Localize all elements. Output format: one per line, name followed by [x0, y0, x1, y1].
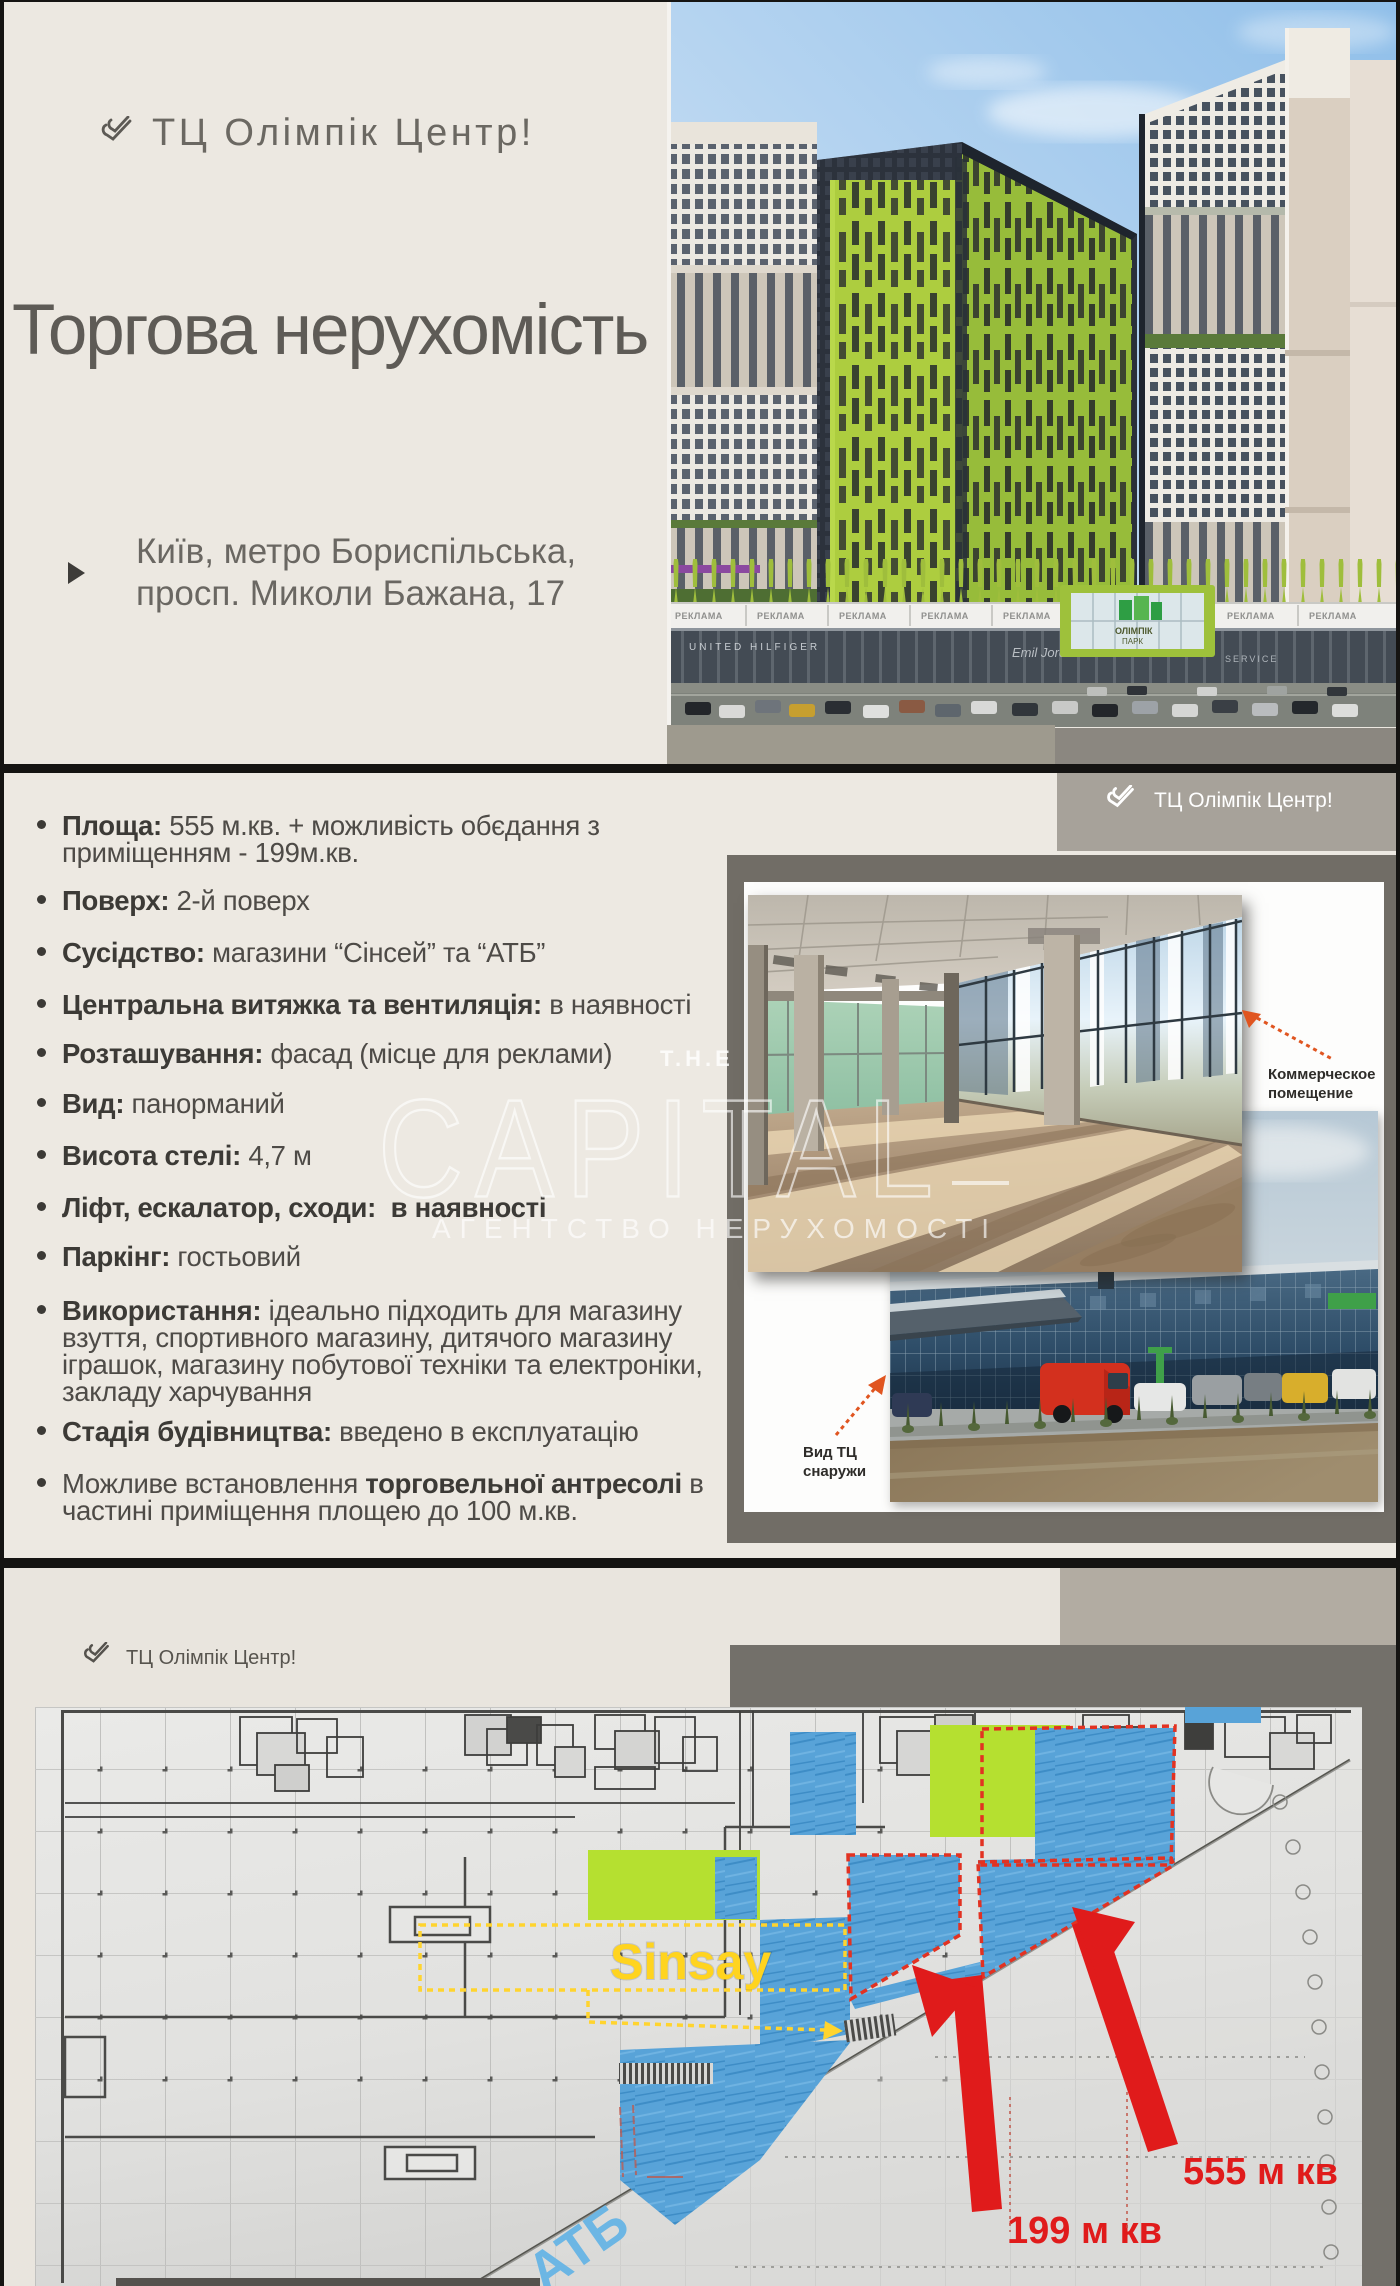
svg-text:РЕКЛАМА: РЕКЛАМА	[1003, 611, 1051, 621]
svg-text:UNITED HILFIGER: UNITED HILFIGER	[689, 642, 820, 653]
svg-text:РЕКЛАМА: РЕКЛАМА	[1309, 611, 1357, 621]
svg-text:РЕКЛАМА: РЕКЛАМА	[675, 611, 723, 621]
svg-text:РЕКЛАМА: РЕКЛАМА	[1227, 611, 1275, 621]
svg-text:Sinsay: Sinsay	[610, 1934, 771, 1990]
svg-text:555 м кв: 555 м кв	[1183, 2151, 1338, 2193]
svg-text:ОЛІМПІК: ОЛІМПІК	[1115, 626, 1153, 636]
svg-text:ПАРК: ПАРК	[1122, 637, 1143, 646]
svg-text:РЕКЛАМА: РЕКЛАМА	[839, 611, 887, 621]
svg-text:РЕКЛАМА: РЕКЛАМА	[757, 611, 805, 621]
svg-text:РЕКЛАМА: РЕКЛАМА	[921, 611, 969, 621]
svg-text:SERVICE: SERVICE	[1225, 654, 1278, 664]
svg-text:199 м кв: 199 м кв	[1007, 2210, 1162, 2252]
